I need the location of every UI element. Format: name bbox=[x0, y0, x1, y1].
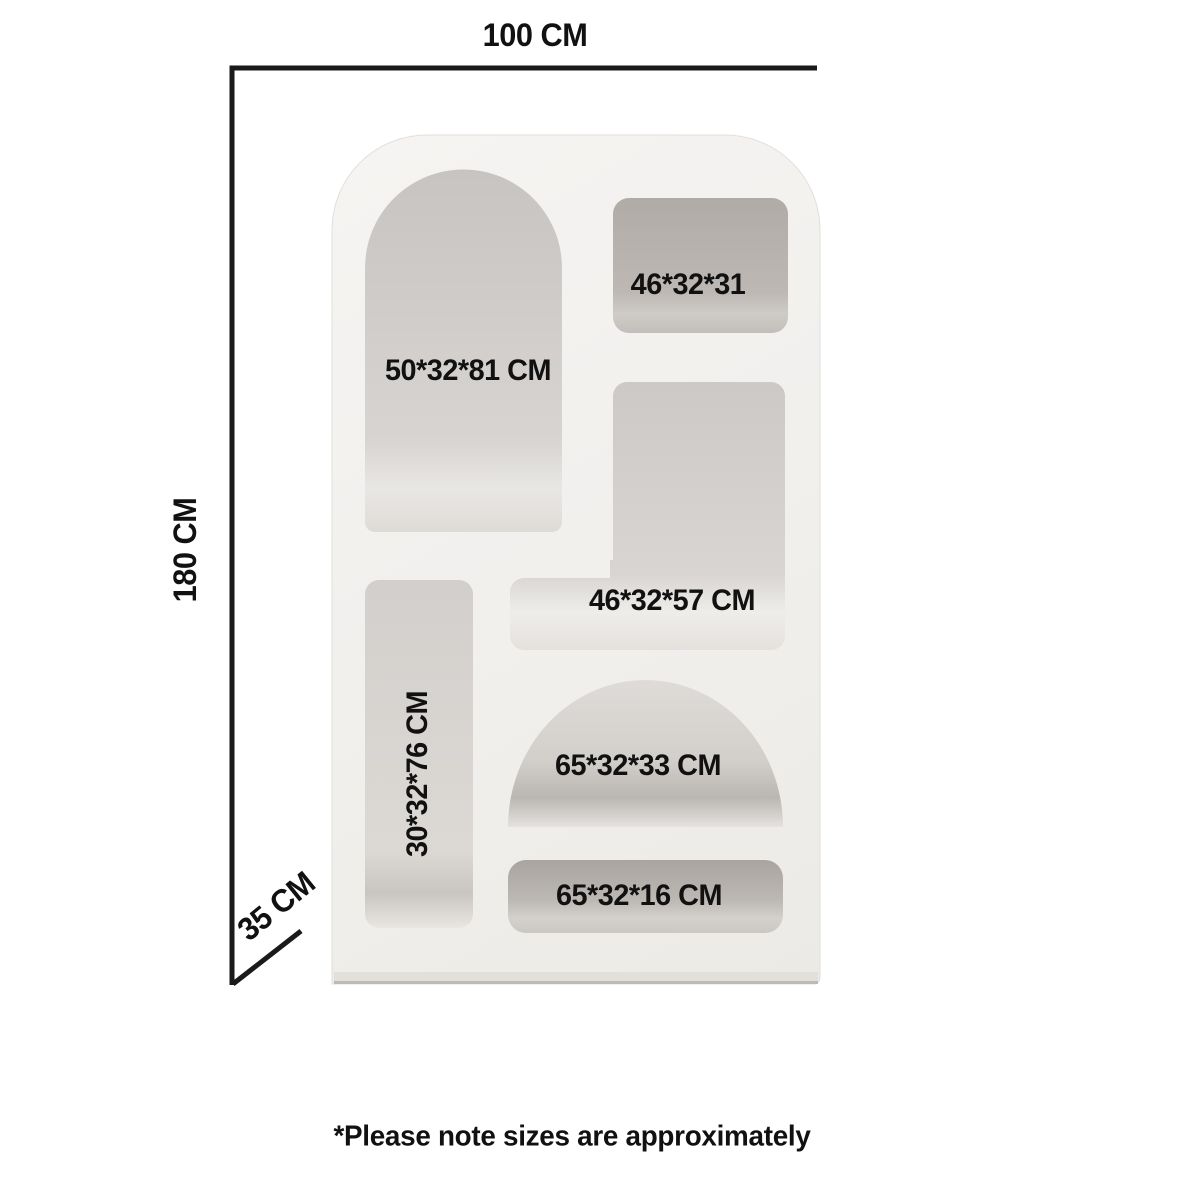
product-dimension-diagram: 100 CM 180 CM 35 CM 50*32*81 CM 46*32*31… bbox=[0, 0, 1200, 1200]
tall-arch-niche-label: 50*32*81 CM bbox=[385, 356, 551, 386]
left-column-niche-label: 30*32*76 CM bbox=[403, 691, 433, 857]
height-dimension-label: 180 CM bbox=[169, 498, 201, 603]
dome-niche-label: 65*32*33 CM bbox=[555, 751, 721, 781]
bottom-slot-niche-label: 65*32*16 CM bbox=[556, 881, 722, 911]
top-right-niche-label: 46*32*31 bbox=[631, 270, 746, 300]
tall-arch-niche bbox=[365, 169, 562, 532]
shelf-bottom-shadow bbox=[334, 981, 818, 984]
disclaimer-note: *Please note sizes are approximately bbox=[333, 1123, 810, 1152]
width-dimension-label: 100 CM bbox=[483, 19, 588, 51]
middle-right-niche-label: 46*32*57 CM bbox=[589, 586, 755, 616]
depth-dimension-line bbox=[233, 931, 301, 984]
top-right-niche bbox=[613, 198, 788, 333]
